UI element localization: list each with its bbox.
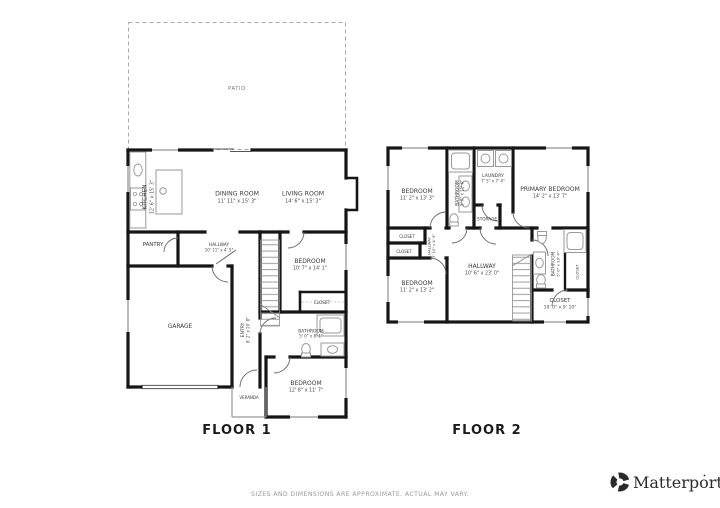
hallway-small-label: HALLWAY — [427, 236, 432, 255]
floorplan-image: PATIO KITCHEN 12' 6" x 15' 3" DINING ROO… — [0, 0, 720, 508]
living-room-label: LIVING ROOM — [282, 191, 324, 198]
hallway-small-dims: 3' 10" x 4' 9" — [432, 234, 436, 258]
closet-left-a-label: CLOSET — [399, 234, 415, 239]
trademark-dot — [704, 475, 706, 477]
garage-label: GARAGE — [168, 324, 193, 330]
hallway2-dims: 10' 6" x 23' 0" — [465, 271, 499, 277]
bathroom-primary-dims: 5' 0" x 10' 4" — [556, 251, 561, 277]
pantry-label: PANTRY — [143, 242, 164, 248]
storage-label: STORAGE — [477, 217, 497, 222]
bedroom-bottom2-label: BEDROOM — [401, 280, 432, 287]
dining-room-label: DINING ROOM — [215, 191, 259, 198]
closet-left-b-label: CLOSET — [396, 249, 412, 254]
disclaimer-text: SIZES AND DIMENSIONS ARE APPROXIMATE. AC… — [251, 491, 469, 498]
bedroom-bottom-dims: 12' 8" x 11' 7" — [289, 388, 323, 394]
matterport-pinwheel-icon — [612, 474, 628, 490]
floorplan-page: PATIO KITCHEN 12' 6" x 15' 3" DINING ROO… — [0, 0, 720, 508]
laundry-dims: 7' 5" x 7' 4" — [481, 179, 505, 184]
bedroom-bottom-label: BEDROOM — [290, 380, 321, 387]
bathroom1-dims: 5' 0" x 8' 1" — [299, 334, 323, 339]
matterport-logo: Matterport — [612, 473, 720, 492]
bedroom-top-dims: 11' 2" x 13' 3" — [400, 196, 434, 202]
primary-bedroom-dims: 14' 2" x 13' 7" — [533, 194, 567, 200]
primary-bedroom-label: PRIMARY BEDROOM — [520, 186, 580, 193]
closet-large-label: CLOSET — [550, 298, 572, 304]
hallway1-dims: 10' 11" x 4' 5" — [205, 248, 234, 253]
closet-large-dims: 10' 0" x 9' 10" — [544, 305, 577, 311]
entry-dims: 8' 2" x 20' 8" — [246, 317, 251, 343]
dining-room-dims: 11' 11" x 15' 3" — [218, 199, 257, 205]
floor2-title: FLOOR 2 — [452, 423, 521, 438]
bedroom-top-label: BEDROOM — [401, 188, 432, 195]
living-room-dims: 14' 6" x 15' 3" — [285, 199, 321, 205]
bedroom-mid-label: BEDROOM — [294, 258, 325, 265]
bathroom-hall-dims: 5' 0" x 11' 6" — [460, 180, 465, 206]
floor1-doors — [164, 232, 304, 387]
bedroom-mid-dims: 10' 7" x 14' 1" — [293, 266, 327, 272]
kitchen-label: KITCHEN — [143, 184, 149, 209]
kitchen-dims: 12' 6" x 15' 3" — [150, 180, 156, 214]
hallway2-label: HALLWAY — [468, 263, 496, 270]
closet1-label: CLOSET — [314, 300, 331, 305]
floor1-fixtures — [130, 152, 344, 357]
matterport-wordmark: Matterport — [633, 473, 720, 492]
floor1-stairs — [260, 240, 280, 326]
closet-small-label: CLOSET — [575, 264, 580, 280]
floor1-plan: PATIO KITCHEN 12' 6" x 15' 3" DINING ROO… — [128, 23, 357, 418]
floor2-stairs — [512, 254, 532, 321]
patio-label: PATIO — [228, 86, 246, 92]
veranda-label: VERANDA — [239, 395, 259, 400]
bedroom-bottom2-dims: 11' 2" x 13' 2" — [400, 288, 434, 294]
floor1-title: FLOOR 1 — [202, 423, 271, 438]
floor2-plan: BEDROOM 11' 2" x 13' 3" BATHROOM 5' 0" x… — [388, 148, 588, 322]
